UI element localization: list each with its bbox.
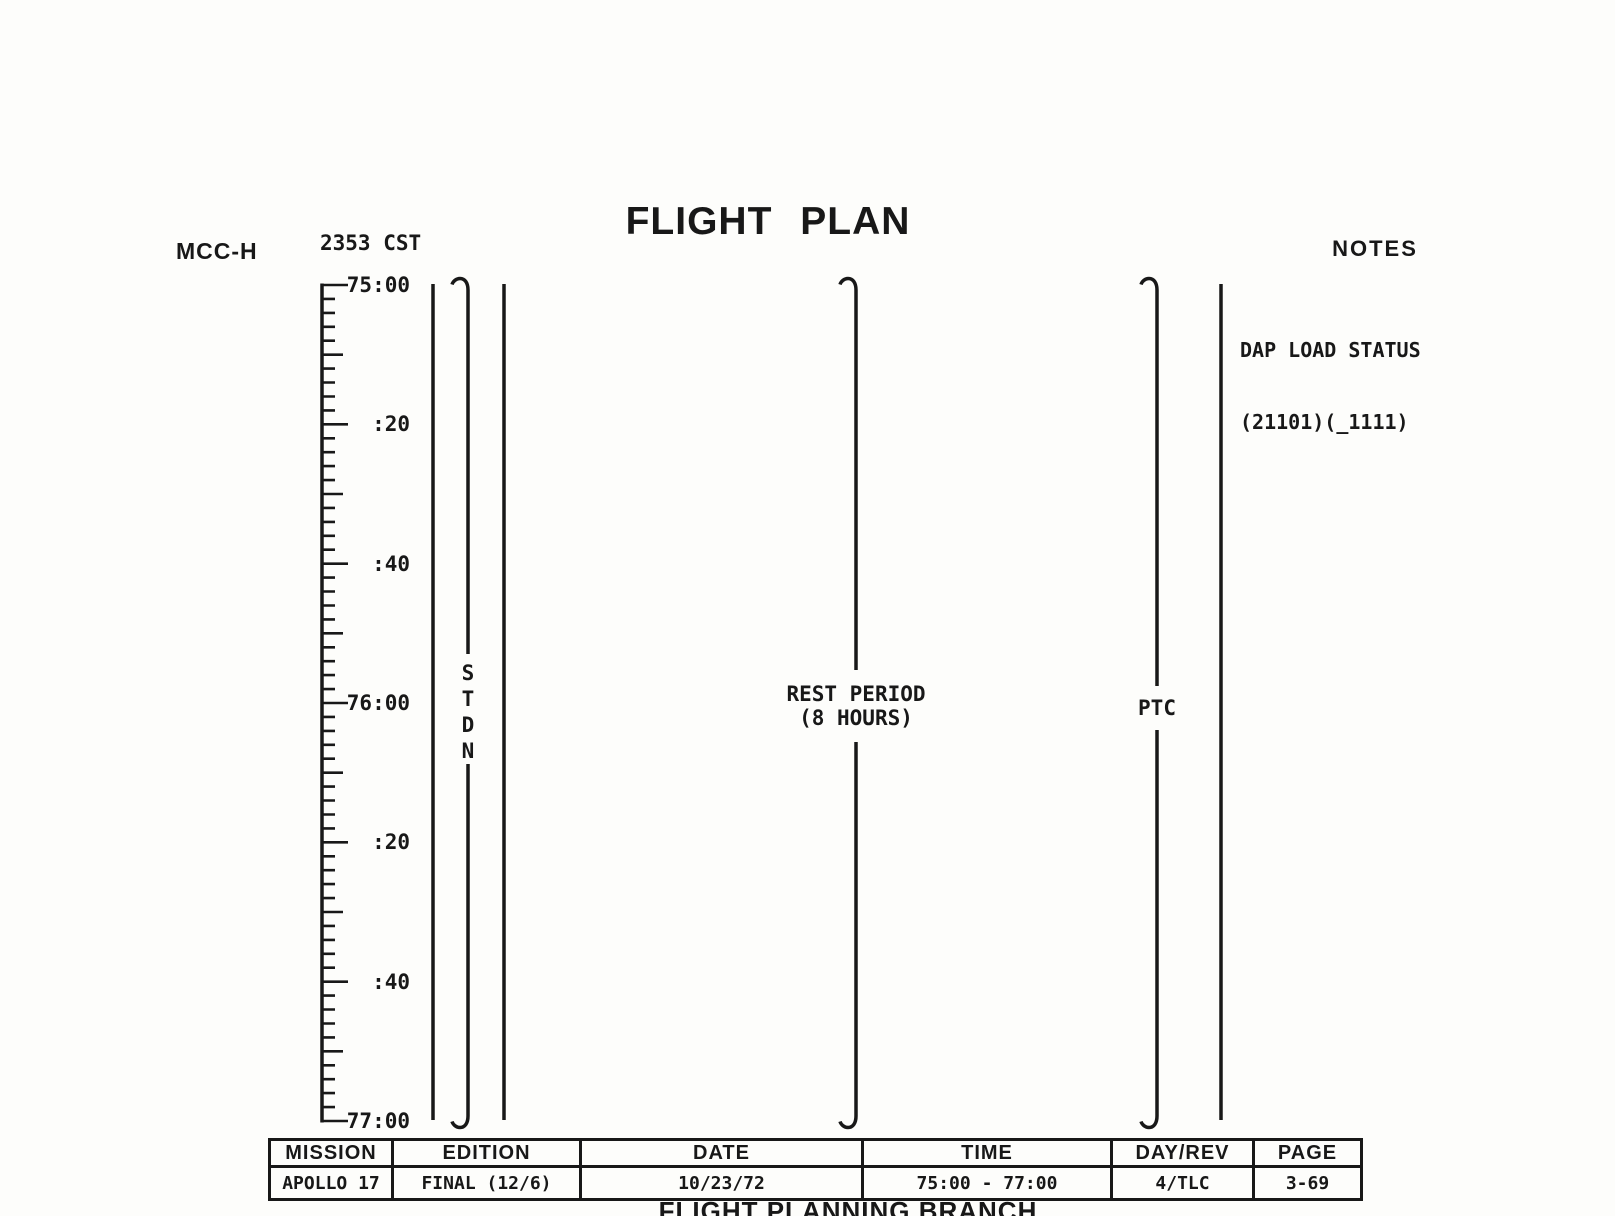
- table-header-row: MISSIONEDITIONDATETIMEDAY/REVPAGE: [270, 1140, 1362, 1167]
- time-tick-label: 76:00: [347, 691, 410, 715]
- footer-value-edition: FINAL (12/6): [393, 1167, 581, 1200]
- footer-branch-title: FLIGHT PLANNING BRANCH: [598, 1196, 1098, 1216]
- footer-header-time: TIME: [863, 1140, 1112, 1167]
- flight-plan-page: FLIGHT PLAN MCC-H 2353 CST NOTES DAP LOA…: [0, 0, 1615, 1216]
- stdn-event-letter: N: [453, 740, 483, 762]
- time-tick-label: :20: [372, 412, 410, 436]
- timeline-chart: [0, 0, 1615, 1216]
- footer-value-date: 10/23/72: [581, 1167, 863, 1200]
- time-tick-label: 77:00: [347, 1109, 410, 1133]
- footer-header-page: PAGE: [1254, 1140, 1362, 1167]
- rest-period-event-label: REST PERIOD (8 HOURS): [736, 682, 976, 730]
- time-tick-label: :20: [372, 830, 410, 854]
- footer-value-page: 3-69: [1254, 1167, 1362, 1200]
- time-tick-label: 75:00: [347, 273, 410, 297]
- footer-header-mission: MISSION: [270, 1140, 393, 1167]
- time-tick-label: :40: [372, 970, 410, 994]
- stdn-event-letter: S: [453, 662, 483, 684]
- footer-value-time: 75:00 - 77:00: [863, 1167, 1112, 1200]
- time-tick-label: :40: [372, 552, 410, 576]
- footer-value-day-rev: 4/TLC: [1112, 1167, 1254, 1200]
- footer-value-mission: APOLLO 17: [270, 1167, 393, 1200]
- stdn-event-letter: T: [453, 688, 483, 710]
- table-value-row: APOLLO 17FINAL (12/6)10/23/7275:00 - 77:…: [270, 1167, 1362, 1200]
- footer-header-day-rev: DAY/REV: [1112, 1140, 1254, 1167]
- stdn-event-letter: D: [453, 714, 483, 736]
- ptc-event-label: PTC: [1117, 696, 1197, 720]
- mission-info-table: MISSIONEDITIONDATETIMEDAY/REVPAGEAPOLLO …: [268, 1138, 1363, 1201]
- time-scale-ticks: [322, 285, 348, 1121]
- footer-header-edition: EDITION: [393, 1140, 581, 1167]
- footer-header-date: DATE: [581, 1140, 863, 1167]
